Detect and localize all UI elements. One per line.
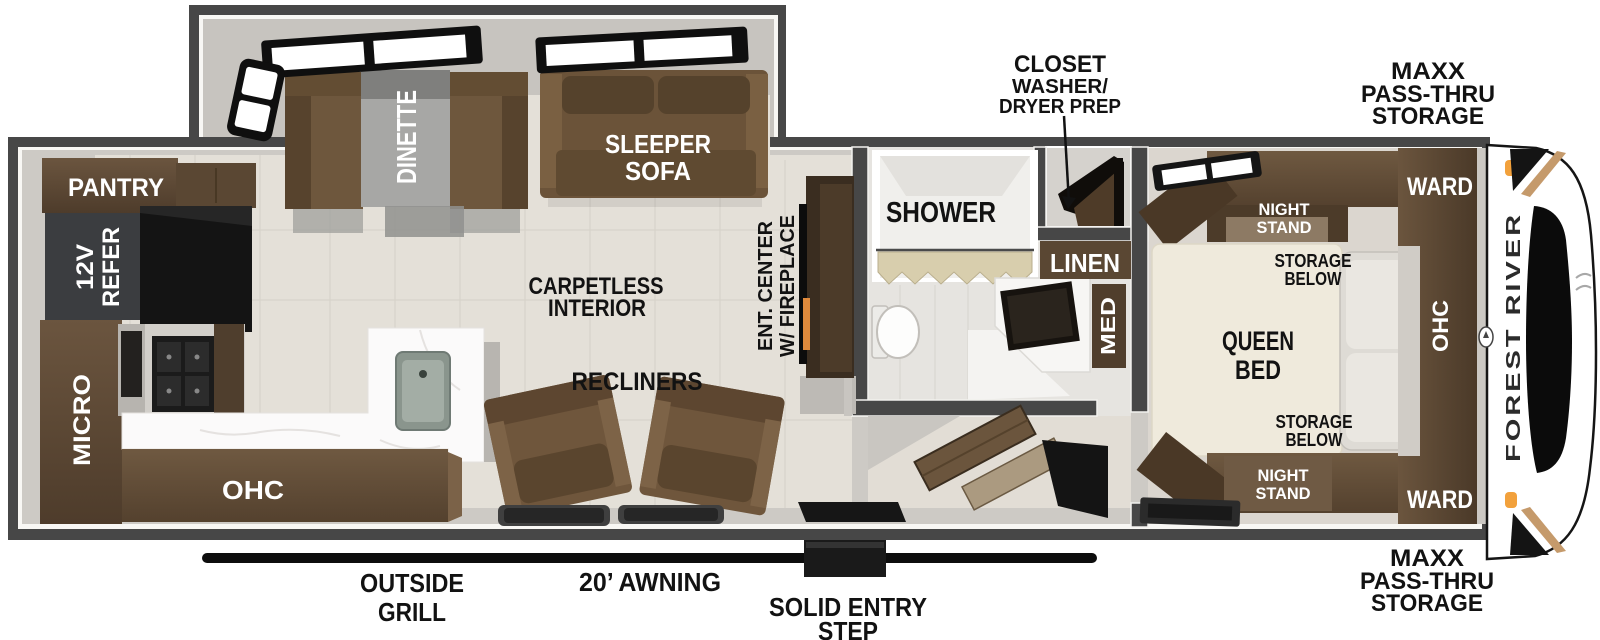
svg-text:STAND: STAND bbox=[1257, 218, 1312, 237]
svg-text:PANTRY: PANTRY bbox=[68, 174, 164, 202]
svg-text:MED: MED bbox=[1098, 297, 1120, 355]
svg-text:RECLINERS: RECLINERS bbox=[572, 368, 703, 396]
svg-text:NIGHT: NIGHT bbox=[1259, 200, 1311, 219]
svg-text:STORAGE: STORAGE bbox=[1276, 412, 1353, 432]
svg-text:WARD: WARD bbox=[1407, 486, 1473, 514]
svg-text:GRILL: GRILL bbox=[378, 597, 446, 627]
svg-text:BELOW: BELOW bbox=[1286, 430, 1343, 450]
svg-text:NIGHT: NIGHT bbox=[1258, 466, 1310, 485]
svg-text:MICRO: MICRO bbox=[69, 374, 96, 466]
svg-text:LINEN: LINEN bbox=[1050, 248, 1120, 278]
svg-text:STEP: STEP bbox=[818, 616, 878, 640]
svg-text:W/ FIREPLACE: W/ FIREPLACE bbox=[777, 215, 799, 357]
svg-text:12V: 12V bbox=[72, 244, 99, 290]
svg-text:WASHER/: WASHER/ bbox=[1012, 76, 1108, 98]
svg-text:OHC: OHC bbox=[1428, 300, 1453, 352]
svg-text:STORAGE: STORAGE bbox=[1372, 103, 1484, 130]
svg-text:CLOSET: CLOSET bbox=[1014, 51, 1106, 78]
svg-text:ENT. CENTER: ENT. CENTER bbox=[755, 220, 777, 351]
svg-text:BED: BED bbox=[1235, 355, 1281, 385]
svg-text:SLEEPER: SLEEPER bbox=[605, 129, 711, 159]
svg-text:STORAGE: STORAGE bbox=[1275, 251, 1352, 271]
svg-text:INTERIOR: INTERIOR bbox=[548, 295, 646, 322]
svg-text:BELOW: BELOW bbox=[1285, 269, 1342, 289]
svg-text:OHC: OHC bbox=[222, 475, 284, 505]
svg-text:SOFA: SOFA bbox=[625, 156, 691, 186]
svg-text:STORAGE: STORAGE bbox=[1371, 590, 1483, 617]
svg-text:WARD: WARD bbox=[1407, 173, 1473, 201]
svg-text:DINETTE: DINETTE bbox=[391, 90, 422, 184]
svg-text:DRYER PREP: DRYER PREP bbox=[999, 96, 1121, 118]
svg-text:20’ AWNING: 20’ AWNING bbox=[579, 567, 721, 597]
svg-text:STAND: STAND bbox=[1256, 484, 1311, 503]
svg-text:OUTSIDE: OUTSIDE bbox=[360, 568, 464, 598]
svg-text:QUEEN: QUEEN bbox=[1222, 326, 1294, 356]
svg-text:SHOWER: SHOWER bbox=[886, 197, 996, 229]
svg-text:REFER: REFER bbox=[98, 227, 125, 307]
svg-text:FOREST RIVER: FOREST RIVER bbox=[1503, 212, 1525, 462]
